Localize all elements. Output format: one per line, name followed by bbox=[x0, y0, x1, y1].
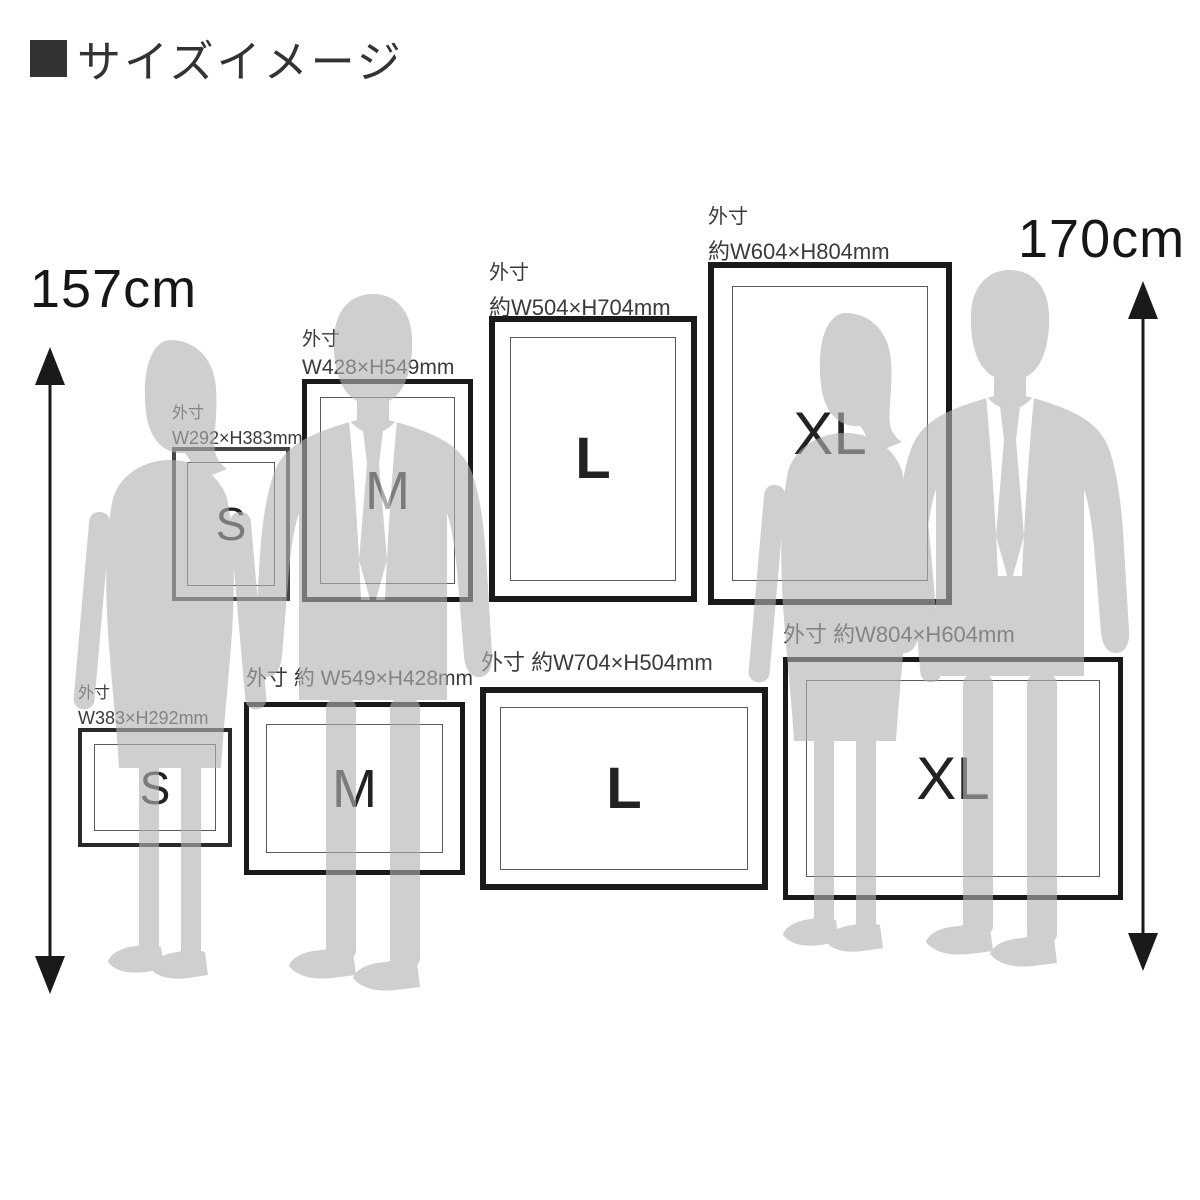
frame-landscape-m-mat bbox=[266, 724, 443, 853]
frame-landscape-s-dimensions: 外寸 W383×H292mm bbox=[78, 679, 209, 729]
label-line: 外寸 約W704×H504mm bbox=[481, 645, 713, 677]
label-line: 約W504×H704mm bbox=[489, 290, 671, 322]
frame-landscape-xl-mat bbox=[806, 680, 1100, 877]
label-line: W292×H383mm bbox=[172, 428, 303, 449]
height-arrow-right bbox=[1128, 281, 1158, 971]
label-line: 約W604×H804mm bbox=[708, 234, 890, 266]
label-line: W383×H292mm bbox=[78, 708, 209, 729]
frame-landscape-l-mat bbox=[500, 707, 748, 870]
frame-portrait-m: M bbox=[302, 379, 473, 602]
frame-landscape-xl: XL bbox=[783, 657, 1123, 900]
size-comparison-diagram: サイズイメージ 157cm 170cm S 外寸 W292×H383mm M 外… bbox=[0, 0, 1200, 1200]
frame-portrait-xl-mat bbox=[732, 286, 928, 581]
frame-portrait-m-dimensions: 外寸 W428×H549mm bbox=[302, 324, 454, 380]
label-line: 外寸 bbox=[78, 679, 209, 703]
title-text: サイズイメージ bbox=[77, 26, 404, 90]
frame-portrait-l-mat bbox=[510, 337, 676, 581]
label-line: 外寸 bbox=[489, 256, 671, 285]
page-title: サイズイメージ bbox=[30, 26, 404, 90]
frame-portrait-xl: XL bbox=[708, 262, 952, 605]
frame-landscape-m: M bbox=[244, 702, 465, 875]
frame-portrait-s-mat bbox=[187, 462, 275, 586]
frame-landscape-s: S bbox=[78, 728, 232, 847]
frame-portrait-xl-dimensions: 外寸 約W604×H804mm bbox=[708, 200, 890, 266]
frame-landscape-xl-dimensions: 外寸 約W804×H604mm bbox=[783, 617, 1015, 654]
label-line: 外寸 bbox=[302, 324, 454, 351]
frame-landscape-l-dimensions: 外寸 約W704×H504mm bbox=[481, 645, 713, 682]
height-arrow-left bbox=[35, 347, 65, 994]
title-square-icon bbox=[30, 40, 67, 77]
frame-landscape-l: L bbox=[480, 687, 768, 890]
frame-portrait-l-dimensions: 外寸 約W504×H704mm bbox=[489, 256, 671, 322]
label-line: W428×H549mm bbox=[302, 356, 454, 380]
label-line: 外寸 bbox=[708, 200, 890, 229]
height-label-157cm: 157cm bbox=[30, 258, 197, 320]
frame-portrait-s-dimensions: 外寸 W292×H383mm bbox=[172, 399, 303, 449]
frame-portrait-l: L bbox=[489, 316, 697, 602]
height-label-170cm: 170cm bbox=[1018, 208, 1185, 270]
label-line: 外寸 bbox=[172, 399, 303, 423]
label-line: 外寸 約W804×H604mm bbox=[783, 617, 1015, 649]
frame-landscape-m-dimensions: 外寸 約 W549×H428mm bbox=[246, 662, 473, 697]
frame-portrait-m-mat bbox=[320, 397, 455, 584]
label-line: 外寸 約 W549×H428mm bbox=[246, 662, 473, 692]
frame-portrait-s: S bbox=[172, 447, 290, 601]
frame-landscape-s-mat bbox=[94, 744, 216, 831]
